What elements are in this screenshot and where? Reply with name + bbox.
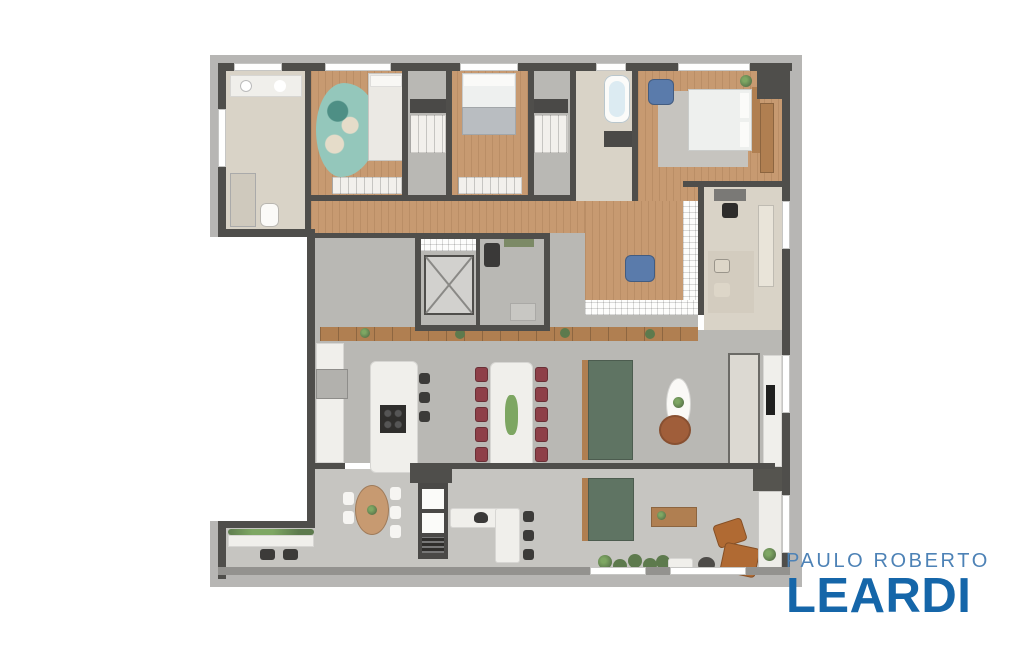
wall-living-terrace — [452, 463, 775, 469]
terrace-wall-block — [753, 467, 782, 491]
outer-band-bottom — [210, 575, 802, 587]
office-chair — [722, 203, 738, 218]
wall-mbath-master — [632, 71, 638, 201]
office-couch — [758, 205, 774, 287]
wall-office-left — [698, 187, 704, 315]
breakfast-chairs-left — [343, 492, 354, 505]
fridge — [316, 369, 348, 399]
brand-logo-top-line: PAULO ROBERTO — [786, 551, 1024, 571]
master-dresser — [760, 103, 774, 173]
wall-kitchen-terrace — [315, 463, 345, 469]
dining-chair — [535, 447, 548, 462]
bathtub-basin — [609, 81, 625, 117]
office-tub-chairs — [714, 259, 730, 273]
window-bathroom — [234, 63, 282, 71]
dining-chair — [475, 447, 488, 462]
tv — [766, 385, 775, 415]
kitchen-counter — [316, 343, 344, 463]
grill-counter-side — [495, 508, 520, 563]
wall-bedroom1-closet1 — [402, 71, 408, 195]
coffee-table-plant — [673, 397, 684, 408]
dining-chair — [475, 367, 488, 382]
sideboard-plants — [360, 328, 370, 338]
wall-bathroom-bottom — [218, 229, 315, 237]
dining-chair — [535, 367, 548, 382]
grill-stools — [523, 511, 534, 522]
window-terrace — [782, 495, 790, 553]
window-bedroom1 — [325, 63, 391, 71]
core-wall-left — [415, 233, 421, 331]
dining-chair — [535, 387, 548, 402]
wall-closet1-bedroom2 — [446, 71, 452, 195]
window-master-bedroom — [678, 63, 750, 71]
dining-chair — [535, 427, 548, 442]
core-partition — [476, 237, 480, 331]
dining-chair — [535, 407, 548, 422]
bedroom2-blanket — [462, 107, 516, 135]
den-tile-border-right — [683, 201, 698, 315]
bedroom1-pillows — [370, 75, 402, 87]
wall-top-right-corner — [757, 63, 782, 99]
dining-centerpiece — [505, 395, 518, 435]
bedroom1-wardrobe — [332, 177, 402, 194]
island-stools — [419, 373, 430, 384]
floor-plan — [210, 55, 802, 587]
core-wall-top — [415, 233, 550, 239]
master-plant — [740, 75, 752, 87]
water-heater — [484, 243, 500, 267]
master-blue-armchair — [648, 79, 674, 105]
dining-chair — [475, 427, 488, 442]
vanity-sinks — [240, 80, 252, 92]
elevator — [424, 255, 474, 315]
bedroom2-pillows — [464, 75, 514, 86]
wall-terrace-notch — [218, 521, 315, 528]
window-bedroom2 — [460, 63, 518, 71]
master-bed-pillows — [740, 93, 749, 118]
wall-bedroom2-closet2 — [528, 71, 534, 195]
terrace-bar-counter — [228, 535, 314, 547]
closet2-cabinet — [534, 115, 568, 153]
bench-plant — [763, 548, 776, 561]
window-left — [218, 109, 226, 167]
closet1-cabinet — [410, 115, 446, 153]
closet1-counter — [410, 99, 446, 113]
wall-rooms-hallway — [311, 195, 576, 201]
cooktop — [380, 405, 406, 433]
toilet — [260, 203, 279, 227]
oven-doors — [422, 489, 444, 509]
wall-left-mid — [307, 229, 315, 525]
brand-logo: PAULO ROBERTO LEARDI — [786, 551, 1024, 621]
shower — [230, 173, 256, 227]
dining-chair — [475, 387, 488, 402]
terrace-table-plant — [657, 511, 666, 520]
closet2-counter — [534, 99, 568, 113]
master-bath-vanity — [604, 131, 632, 147]
elevator-cross-icon — [424, 255, 474, 315]
den-tile-border-bottom — [585, 300, 698, 315]
bar-stools — [260, 549, 275, 560]
service-fixture — [510, 303, 536, 321]
core-shelf — [504, 239, 534, 247]
round-pouf — [659, 415, 691, 445]
window-office — [782, 201, 790, 249]
dining-chair — [475, 407, 488, 422]
terrace-sofa-green — [582, 478, 634, 541]
living-sofa-green — [582, 360, 633, 460]
wall-closet2-mbath — [570, 71, 576, 195]
living-sofa-wood-frame — [728, 353, 760, 465]
elevator-lobby-tile — [418, 237, 476, 251]
window-master-bath — [596, 63, 626, 71]
core-wall-bottom — [415, 325, 550, 331]
outer-band-right — [790, 55, 802, 587]
window-living — [782, 355, 790, 413]
wall-bath-bedroom1 — [305, 71, 311, 229]
grill-icon — [474, 512, 488, 523]
den-blue-armchair — [625, 255, 655, 282]
window-terrace-bottom-2 — [670, 567, 746, 575]
bedroom2-wardrobe — [458, 177, 522, 194]
breakfast-table-plant — [367, 505, 377, 515]
core-wall-right — [544, 233, 550, 331]
office-desk — [714, 189, 746, 201]
window-terrace-bottom-1 — [590, 567, 646, 575]
oven-vents — [422, 537, 444, 553]
gourmet-wall-stub — [410, 463, 452, 483]
brand-logo-bottom-line: LEARDI — [786, 572, 1024, 621]
breakfast-chairs-right — [390, 487, 401, 500]
